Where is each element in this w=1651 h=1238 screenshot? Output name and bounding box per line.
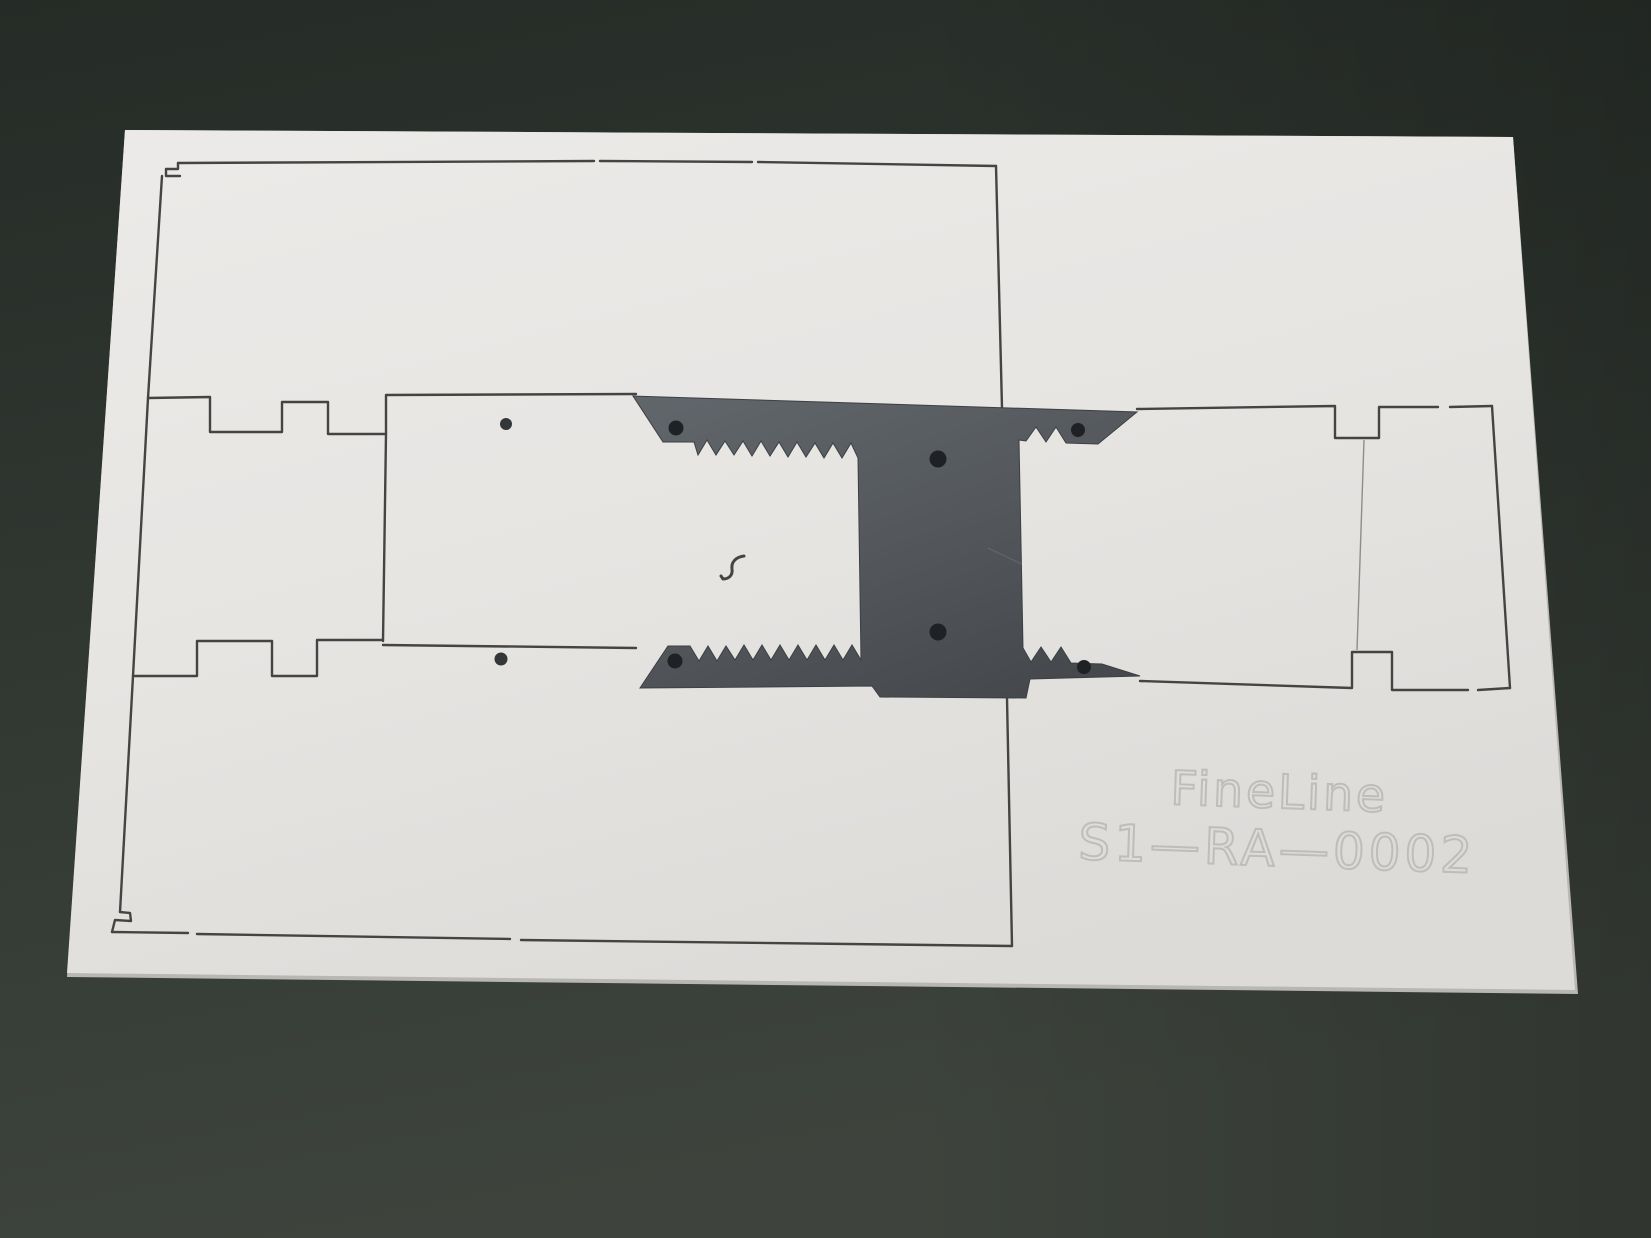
bracket-hole xyxy=(668,654,683,669)
engraving-line1: FineLine xyxy=(1170,761,1389,824)
bracket-hole xyxy=(930,451,947,468)
panel-hole xyxy=(495,653,508,666)
bracket-hole xyxy=(1071,423,1085,437)
panel-hole xyxy=(500,418,512,430)
bracket-hole xyxy=(1077,660,1091,674)
bracket-hole xyxy=(930,624,947,641)
bracket-hole xyxy=(669,421,684,436)
photo-scene: FineLine S1—RA—0002 xyxy=(0,0,1651,1238)
